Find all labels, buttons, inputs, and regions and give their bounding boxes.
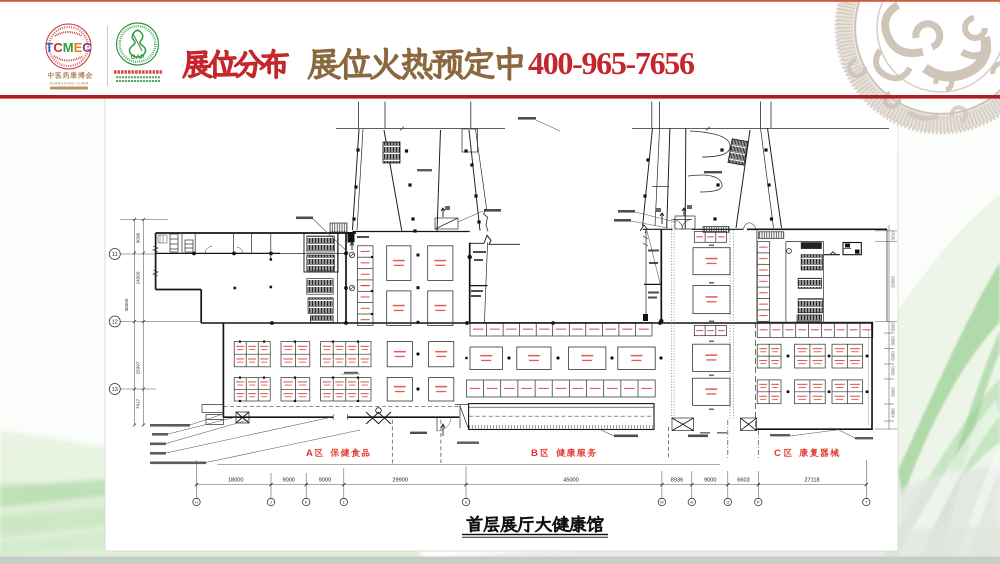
svg-text:9098: 9098 — [136, 232, 141, 243]
svg-text:J: J — [270, 501, 272, 505]
svg-text:24000: 24000 — [136, 271, 141, 284]
svg-text:8936: 8936 — [671, 478, 683, 484]
svg-text:3010: 3010 — [891, 231, 896, 241]
svg-text:TCMEC: TCMEC — [45, 40, 92, 55]
svg-text:20500: 20500 — [891, 276, 896, 288]
svg-text:L: L — [343, 501, 345, 505]
svg-text:45000: 45000 — [563, 478, 579, 484]
svg-text:3000: 3000 — [891, 322, 896, 332]
svg-text:7417: 7417 — [136, 398, 141, 409]
svg-text:18000: 18000 — [228, 478, 244, 484]
svg-text:9000: 9000 — [319, 478, 331, 484]
svg-text:6000: 6000 — [891, 387, 896, 397]
svg-text:A: A — [306, 448, 313, 459]
svg-text:29900: 29900 — [392, 478, 408, 484]
svg-text:36000: 36000 — [124, 298, 129, 311]
svg-text:H: H — [195, 501, 198, 505]
svg-text:25397: 25397 — [136, 361, 141, 374]
svg-text:P: P — [757, 501, 760, 505]
svg-text:27118: 27118 — [804, 478, 819, 484]
svg-text:B: B — [531, 448, 538, 459]
svg-text:12: 12 — [112, 320, 118, 326]
svg-text:13: 13 — [112, 387, 118, 393]
svg-text:6603: 6603 — [737, 478, 749, 484]
svg-text:9000: 9000 — [282, 478, 294, 484]
svg-text:Q: Q — [726, 501, 729, 505]
svg-text:9000: 9000 — [704, 478, 716, 484]
svg-text:C: C — [774, 448, 781, 459]
svg-text:K: K — [305, 501, 308, 505]
svg-text:N: N — [690, 501, 693, 505]
svg-text:11: 11 — [112, 252, 118, 258]
svg-text:6000: 6000 — [891, 351, 896, 361]
svg-text:4380: 4380 — [891, 408, 896, 418]
svg-text:GUANGZHOU CHINA: GUANGZHOU CHINA — [49, 82, 89, 86]
svg-text:GAP: GAP — [131, 54, 144, 61]
svg-text:3000: 3000 — [891, 336, 896, 346]
svg-text:S: S — [465, 501, 468, 505]
svg-text:400-965-7656: 400-965-7656 — [528, 45, 695, 81]
svg-text:M: M — [660, 501, 663, 505]
svg-text:3000: 3000 — [891, 366, 896, 376]
